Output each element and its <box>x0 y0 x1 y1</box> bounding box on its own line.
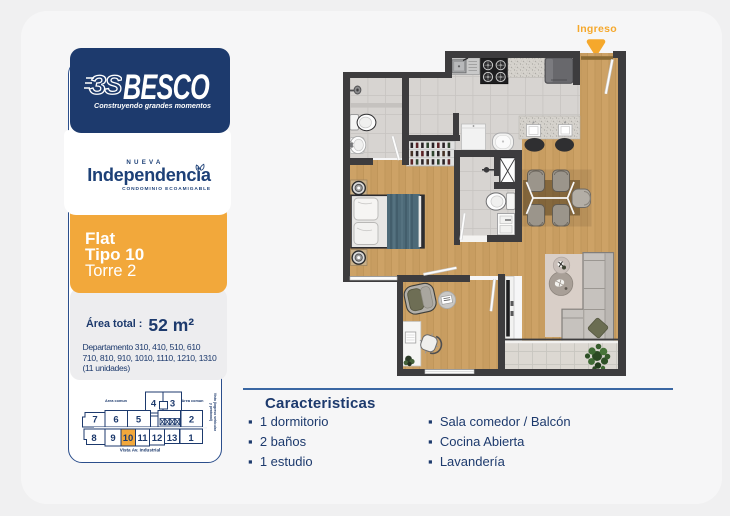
svg-text:2: 2 <box>189 415 194 426</box>
svg-text:ЗS: ЗS <box>89 70 122 98</box>
svg-text:4: 4 <box>151 399 157 410</box>
svg-text:6: 6 <box>113 415 118 426</box>
svg-text:13: 13 <box>167 433 178 444</box>
svg-text:3: 3 <box>170 399 175 410</box>
svg-text:12: 12 <box>152 433 163 444</box>
svg-text:1: 1 <box>188 433 194 444</box>
svg-text:10: 10 <box>123 433 134 444</box>
svg-text:7: 7 <box>92 415 97 426</box>
svg-text:Vista Av. Industrial: Vista Av. Industrial <box>120 448 161 453</box>
svg-text:Area comun: Area comun <box>105 399 128 403</box>
svg-text:11: 11 <box>137 433 148 444</box>
svg-text:5: 5 <box>136 415 142 426</box>
svg-text:y peatonal): y peatonal) <box>209 403 213 421</box>
svg-text:8: 8 <box>91 433 96 444</box>
svg-text:9: 9 <box>110 433 115 444</box>
svg-text:Area comun: Area comun <box>182 399 205 403</box>
